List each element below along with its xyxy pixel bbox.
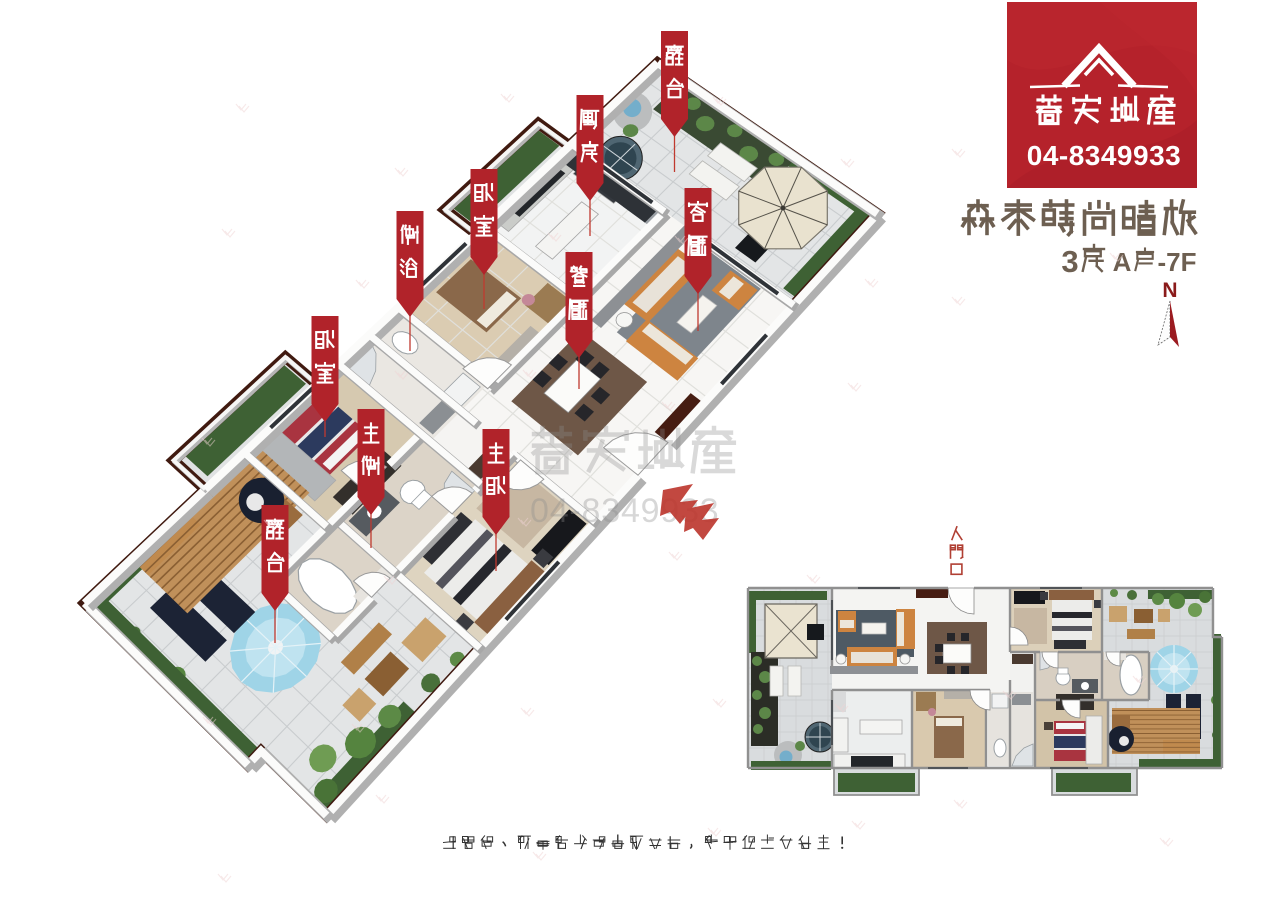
svg-text:04-8349933: 04-8349933 <box>1027 140 1181 171</box>
svg-text:-7F: -7F <box>1158 247 1197 277</box>
svg-text:A: A <box>1113 247 1132 277</box>
svg-text:N: N <box>1162 279 1177 302</box>
svg-text:3: 3 <box>1061 244 1078 279</box>
